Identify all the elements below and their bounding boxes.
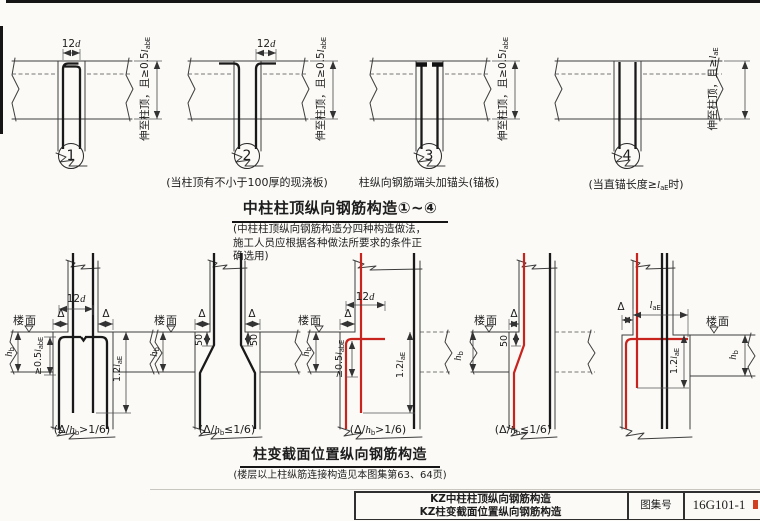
dim-label-delta: Δ (242, 307, 262, 321)
dim-label-extend-to-top: 伸至柱顶，且≥0.5labE (495, 14, 511, 164)
top-detail-3: 伸至柱顶，且≥0.5labE 3 柱纵向钢筋端头加锚头(锚板) (368, 25, 536, 197)
title-block-sheet-title: KZ中柱柱顶纵向钢筋构造 KZ柱变截面位置纵向钢筋构造 (356, 493, 625, 518)
floor-label: 楼面 (706, 313, 730, 329)
floor-label: 楼面 (298, 312, 322, 328)
bottom-detail-5: laE Δ 楼面 hb 1.2laE (593, 253, 760, 445)
concrete-outline (155, 260, 302, 439)
dim-label-hb: hb (725, 343, 741, 367)
floor-label: 楼面 (154, 312, 178, 328)
dim-label-12d: 12d (248, 37, 284, 52)
dim-label-delta: Δ (338, 307, 358, 321)
bottom-detail-1: 12d Δ Δ 楼面 hb ≥0.5labE 1.2laE (Δ/hb>1/6) (3, 253, 161, 445)
detail-caption: (Δ/hb≤1/6) (148, 423, 306, 437)
dim-label-delta: Δ (51, 307, 71, 321)
dim-label-12d: 12d (347, 290, 383, 305)
note-line: (中柱柱顶纵向钢筋构造分四种构造做法， (233, 223, 433, 237)
detail-number-3: 3 (416, 143, 442, 169)
rebar-detail-drawing (443, 253, 603, 445)
rebar-black (219, 64, 276, 150)
dim-label-hb: hb (1, 340, 17, 364)
dim-label-hb: hb (450, 344, 466, 368)
dim-label-hb: hb (298, 340, 314, 364)
detail-number-2: 2 (234, 143, 260, 169)
dim-label-delta: Δ (192, 307, 212, 321)
dim-label-12d: 12d (53, 37, 89, 52)
detail-number-4: 4 (614, 143, 640, 169)
dim-label-anchor-05labE: ≥0.5labE (31, 324, 47, 388)
photo-edge-left (0, 26, 3, 134)
bottom-section-note: (楼层以上柱纵筋连接构造见本图集第63、64页) (0, 466, 680, 481)
dim-label-hb: hb (146, 340, 162, 364)
dim-label-delta: Δ (504, 307, 524, 321)
atlas-number-label: 图集号 (629, 491, 683, 519)
dim-label-extend-to-top: 伸至柱顶，且≥0.5labE (137, 14, 153, 164)
rebar-black (620, 62, 636, 149)
concrete-outline (470, 260, 595, 439)
rebar-black (59, 253, 107, 429)
dim-label-50: 50 (192, 330, 208, 350)
detail-number-1: 1 (58, 143, 84, 169)
bottom-section-heading: 柱变截面位置纵向钢筋构造 (240, 444, 440, 468)
top-detail-2: 12d 伸至柱顶，且≥0.5labE 2 (当柱顶有不小于100厚的现浇板) (186, 25, 354, 197)
dim-label-12laE: 1.2laE (667, 333, 683, 389)
atlas-number-value: 16G101-1 (685, 491, 753, 519)
detail-caption: (Δ/hb>1/6) (3, 423, 161, 437)
dim-label-delta: Δ (611, 300, 631, 314)
floor-label: 楼面 (474, 312, 498, 328)
detail-caption: 柱纵向钢筋端头加锚头(锚板) (324, 174, 534, 190)
dim-label-50: 50 (247, 330, 263, 350)
divider (150, 489, 760, 490)
dim-label-extend-to-top: 伸至柱顶，且≥0.5labE (313, 14, 329, 164)
detail-caption: (Δ/hb≤1/6) (443, 423, 603, 437)
dim-label-12d: 12d (58, 292, 94, 307)
dim-label-anchor-05labE: ≥0.5labE (332, 327, 348, 391)
rebar-detail-drawing (148, 253, 306, 445)
dim-label-delta: Δ (96, 307, 116, 321)
top-section-heading: 中柱柱顶纵向钢筋构造①~④ (232, 197, 448, 223)
detail-caption: (Δ/hb>1/6) (298, 423, 458, 437)
sheet-title-line1: KZ中柱柱顶纵向钢筋构造 (356, 493, 625, 506)
dimension-lines (724, 61, 750, 119)
concrete-outline (555, 58, 723, 166)
detail-caption: (当柱顶有不小于100厚的现浇板) (142, 174, 352, 190)
bottom-detail-2: Δ Δ 楼面 hb 50 50 (Δ/hb≤1/6) (148, 253, 306, 445)
atlas-page: 12d 伸至柱顶，且≥0.5labE 1 12d (0, 0, 760, 521)
dim-label-12laE: 1.2laE (393, 337, 409, 393)
detail-caption: (当直锚长度≥laE时) (531, 176, 741, 192)
concrete-outline (307, 260, 452, 439)
top-detail-1: 12d 伸至柱顶，且≥0.5labE 1 (10, 25, 178, 197)
dim-label-laE: laE (637, 298, 673, 315)
top-detail-4: 伸至柱顶，且≥laE 4 (当直锚长度≥laE时) (532, 25, 760, 197)
sheet-title-line2: KZ柱变截面位置纵向钢筋构造 (356, 506, 625, 519)
red-stamp-mark (753, 500, 758, 509)
note-line: 施工人员应根据各种做法所要求的条件正 (233, 237, 433, 251)
bottom-detail-4: Δ 楼面 hb 50 (Δ/hb≤1/6) (443, 253, 603, 445)
rebar-detail-drawing (298, 253, 458, 445)
photo-edge-top (6, 0, 760, 3)
dim-label-12laE: 1.2laE (110, 341, 126, 397)
bottom-detail-3: 12d Δ 楼面 hb ≥0.5labE 1.2laE (Δ/hb>1/6) (298, 253, 458, 445)
dim-label-extend-to-top: 伸至柱顶，且≥laE (705, 14, 721, 164)
rebar-detail-drawing (3, 253, 161, 445)
dim-label-50: 50 (497, 331, 513, 351)
rebar-detail-drawing (532, 25, 760, 175)
rebar-black (63, 64, 80, 150)
rebar-black (416, 65, 443, 150)
